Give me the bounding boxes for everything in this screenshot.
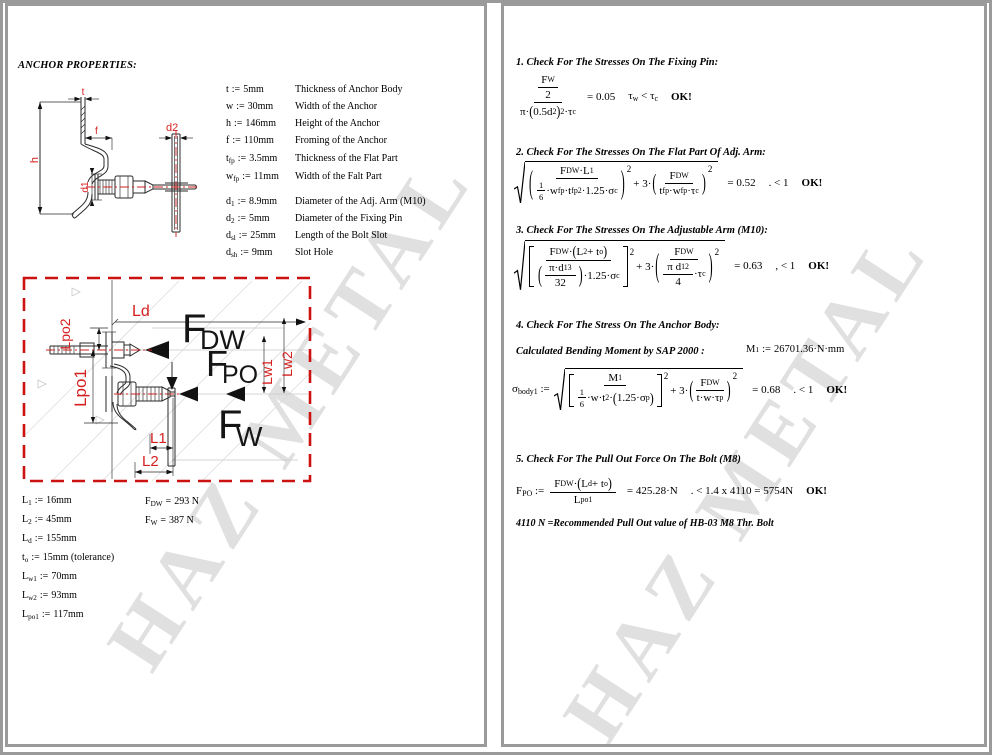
property-row: dsl:=25mmLength of the Bolt Slot <box>226 230 276 242</box>
result-value: = 0.68 <box>752 384 780 396</box>
force-value-row: FDW=293 N <box>145 496 199 508</box>
paren: ) <box>579 261 583 290</box>
length-row: Ld:=155mm <box>22 533 77 545</box>
var-description: Length of the Bolt Slot <box>295 230 387 241</box>
var-description: Diameter of the Adj. Arm (M10) <box>295 196 426 207</box>
force-label-fpo-sub: PO <box>222 361 258 389</box>
var-description: Width of the Falt Part <box>295 171 382 182</box>
dim-label-h: h <box>29 157 41 163</box>
formula-5: FPO := FDW·(Ld + to) Lpo1 = 425.28·N . <… <box>516 476 827 506</box>
paren: ) <box>709 246 713 287</box>
property-row: tfp:=3.5mmThickness of the Flat Part <box>226 153 277 165</box>
bending-moment-note: Calculated Bending Moment by SAP 2000 : <box>516 346 705 357</box>
var-value: 3.5mm <box>249 153 277 164</box>
condition: . < 1.4 x 4110 = 5754N <box>691 485 793 497</box>
section-4-heading: 4. Check For The Stress On The Anchor Bo… <box>516 320 720 331</box>
var-description: Slot Hole <box>295 247 333 258</box>
paren: ) <box>702 169 706 198</box>
length-row: Lw1:=70mm <box>22 571 77 583</box>
formula-lhs: σbody1 := <box>512 383 550 396</box>
var-symbol: t <box>226 84 229 95</box>
section-3-heading: 3. Check For The Stresses On The Adjusta… <box>516 225 768 236</box>
var-symbol: f <box>226 135 229 146</box>
condition: . < 1 <box>793 384 813 396</box>
bracket <box>657 374 662 407</box>
var-value: 146mm <box>245 118 276 129</box>
ok-flag: OK! <box>826 384 847 396</box>
condition: τw < τc <box>628 90 658 103</box>
var-symbol: w <box>226 101 233 112</box>
length-row: L2:=45mm <box>22 514 72 526</box>
var-value: 5mm <box>243 84 264 95</box>
result-value: = 0.63 <box>734 260 762 272</box>
section-1-heading: 1. Check For The Stresses On The Fixing … <box>516 57 718 68</box>
dim-label-f: f <box>95 126 98 137</box>
formula-1: FW2 π·(0.5d2)2·τc = 0.05 τw < τc OK! <box>518 74 692 119</box>
formula-4: σbody1 := M1 16·w·t2·(1.25·σp) 2 + 3· ( … <box>512 368 847 411</box>
var-value: 11mm <box>254 171 279 182</box>
property-row: dsh:=9mmSlot Hole <box>226 247 272 259</box>
formula-lhs: FPO := <box>516 485 544 498</box>
moment-value: M1:=26701.36·N·mm <box>746 344 844 355</box>
force-arrow-fpo <box>179 387 198 402</box>
paren: ) <box>621 163 625 204</box>
result-value: = 425.28·N <box>627 485 678 497</box>
length-row: Lw2:=93mm <box>22 590 77 602</box>
length-row: Lpo1:=117mm <box>22 609 84 621</box>
paren: ( <box>529 163 533 204</box>
dim-label-l1: L1 <box>150 430 167 447</box>
condition: , < 1 <box>775 260 795 272</box>
ok-flag: OK! <box>671 91 692 103</box>
bracket <box>529 246 534 287</box>
var-description: Diameter of the Fixing Pin <box>295 213 402 224</box>
dim-label-lpo2: Lpo2 <box>57 318 73 349</box>
section-5-heading: 5. Check For The Pull Out Force On The B… <box>516 454 741 465</box>
property-row: t:=5mmThickness of Anchor Body <box>226 84 264 96</box>
result-value: = 0.05 <box>587 91 615 103</box>
paren: ) <box>727 376 731 405</box>
property-row: wfp:=11mmWidth of the Falt Part <box>226 171 279 183</box>
radical-sign <box>514 240 525 291</box>
page-2: HAZ METAL 1. Check For The Stresses On T… <box>501 3 987 747</box>
dim-label-lw1: Lw1 <box>259 359 275 385</box>
dim-label-lw2: Lw2 <box>279 351 295 377</box>
var-value: 5mm <box>249 213 270 224</box>
paren: ( <box>655 246 659 287</box>
var-description: Froming of the Anchor <box>295 135 387 146</box>
page-title: ANCHOR PROPERTIES: <box>18 60 137 71</box>
radical-sign <box>554 368 565 411</box>
var-value: 8.9mm <box>249 196 277 207</box>
page-1: HAZ METAL ANCHOR PROPERTIES: h t <box>5 3 487 747</box>
var-description: Thickness of Anchor Body <box>295 84 403 95</box>
force-label-fw-sub: W <box>236 421 263 452</box>
condition: . < 1 <box>769 177 789 189</box>
property-row: w:=30mmWidth of the Anchor <box>226 101 273 113</box>
var-value: 30mm <box>248 101 274 112</box>
formula-2: ( FDW·L1 16·wfp·tfp2·1.25·σc )2 + 3· ( F… <box>514 161 822 204</box>
paren: ( <box>538 261 542 290</box>
property-row: d1:=8.9mmDiameter of the Adj. Arm (M10) <box>226 196 277 208</box>
var-description: Height of the Anchor <box>295 118 380 129</box>
ok-flag: OK! <box>806 485 827 497</box>
ok-flag: OK! <box>802 177 823 189</box>
anchor-side-view-drawing: h t f <box>28 86 218 256</box>
property-row: d2:=5mmDiameter of the Fixing Pin <box>226 213 270 225</box>
var-description: Thickness of the Flat Part <box>295 153 398 164</box>
bracket <box>623 246 628 287</box>
var-value: 9mm <box>252 247 273 258</box>
bracket <box>569 374 574 407</box>
property-row: h:=146mmHeight of the Anchor <box>226 118 276 130</box>
length-row: to:=15mm (tolerance) <box>22 552 114 564</box>
var-value: 25mm <box>250 230 276 241</box>
dim-label-t: t <box>82 87 85 98</box>
var-description: Width of the Anchor <box>295 101 377 112</box>
dim-label-lpo1: Lpo1 <box>71 369 90 407</box>
length-row: L1:=16mm <box>22 495 72 507</box>
section-2-heading: 2. Check For The Stresses On The Flat Pa… <box>516 147 766 158</box>
var-symbol: h <box>226 118 231 129</box>
paren: ( <box>652 169 656 198</box>
dim-label-ld: Ld <box>132 303 150 320</box>
scanned-sheet: HAZ METAL ANCHOR PROPERTIES: h t <box>0 0 992 755</box>
pullout-note: 4110 N =Recommended Pull Out value of HB… <box>516 518 774 529</box>
property-row: f:=110mmFroming of the Anchor <box>226 135 274 147</box>
paren: ( <box>689 376 693 405</box>
force-value-row: FW=387 N <box>145 515 194 527</box>
dim-label-l2: L2 <box>142 453 159 470</box>
formula-3: FDW·(L2 + to) (π·d1332)·1.25·σc 2 + 3· (… <box>514 240 829 291</box>
anchor-assembly-drawing: Lpo2 Lpo1 Ld <box>22 276 312 483</box>
var-value: 110mm <box>244 135 274 146</box>
result-value: = 0.52 <box>727 177 755 189</box>
ok-flag: OK! <box>808 260 829 272</box>
radical-sign <box>514 161 525 204</box>
